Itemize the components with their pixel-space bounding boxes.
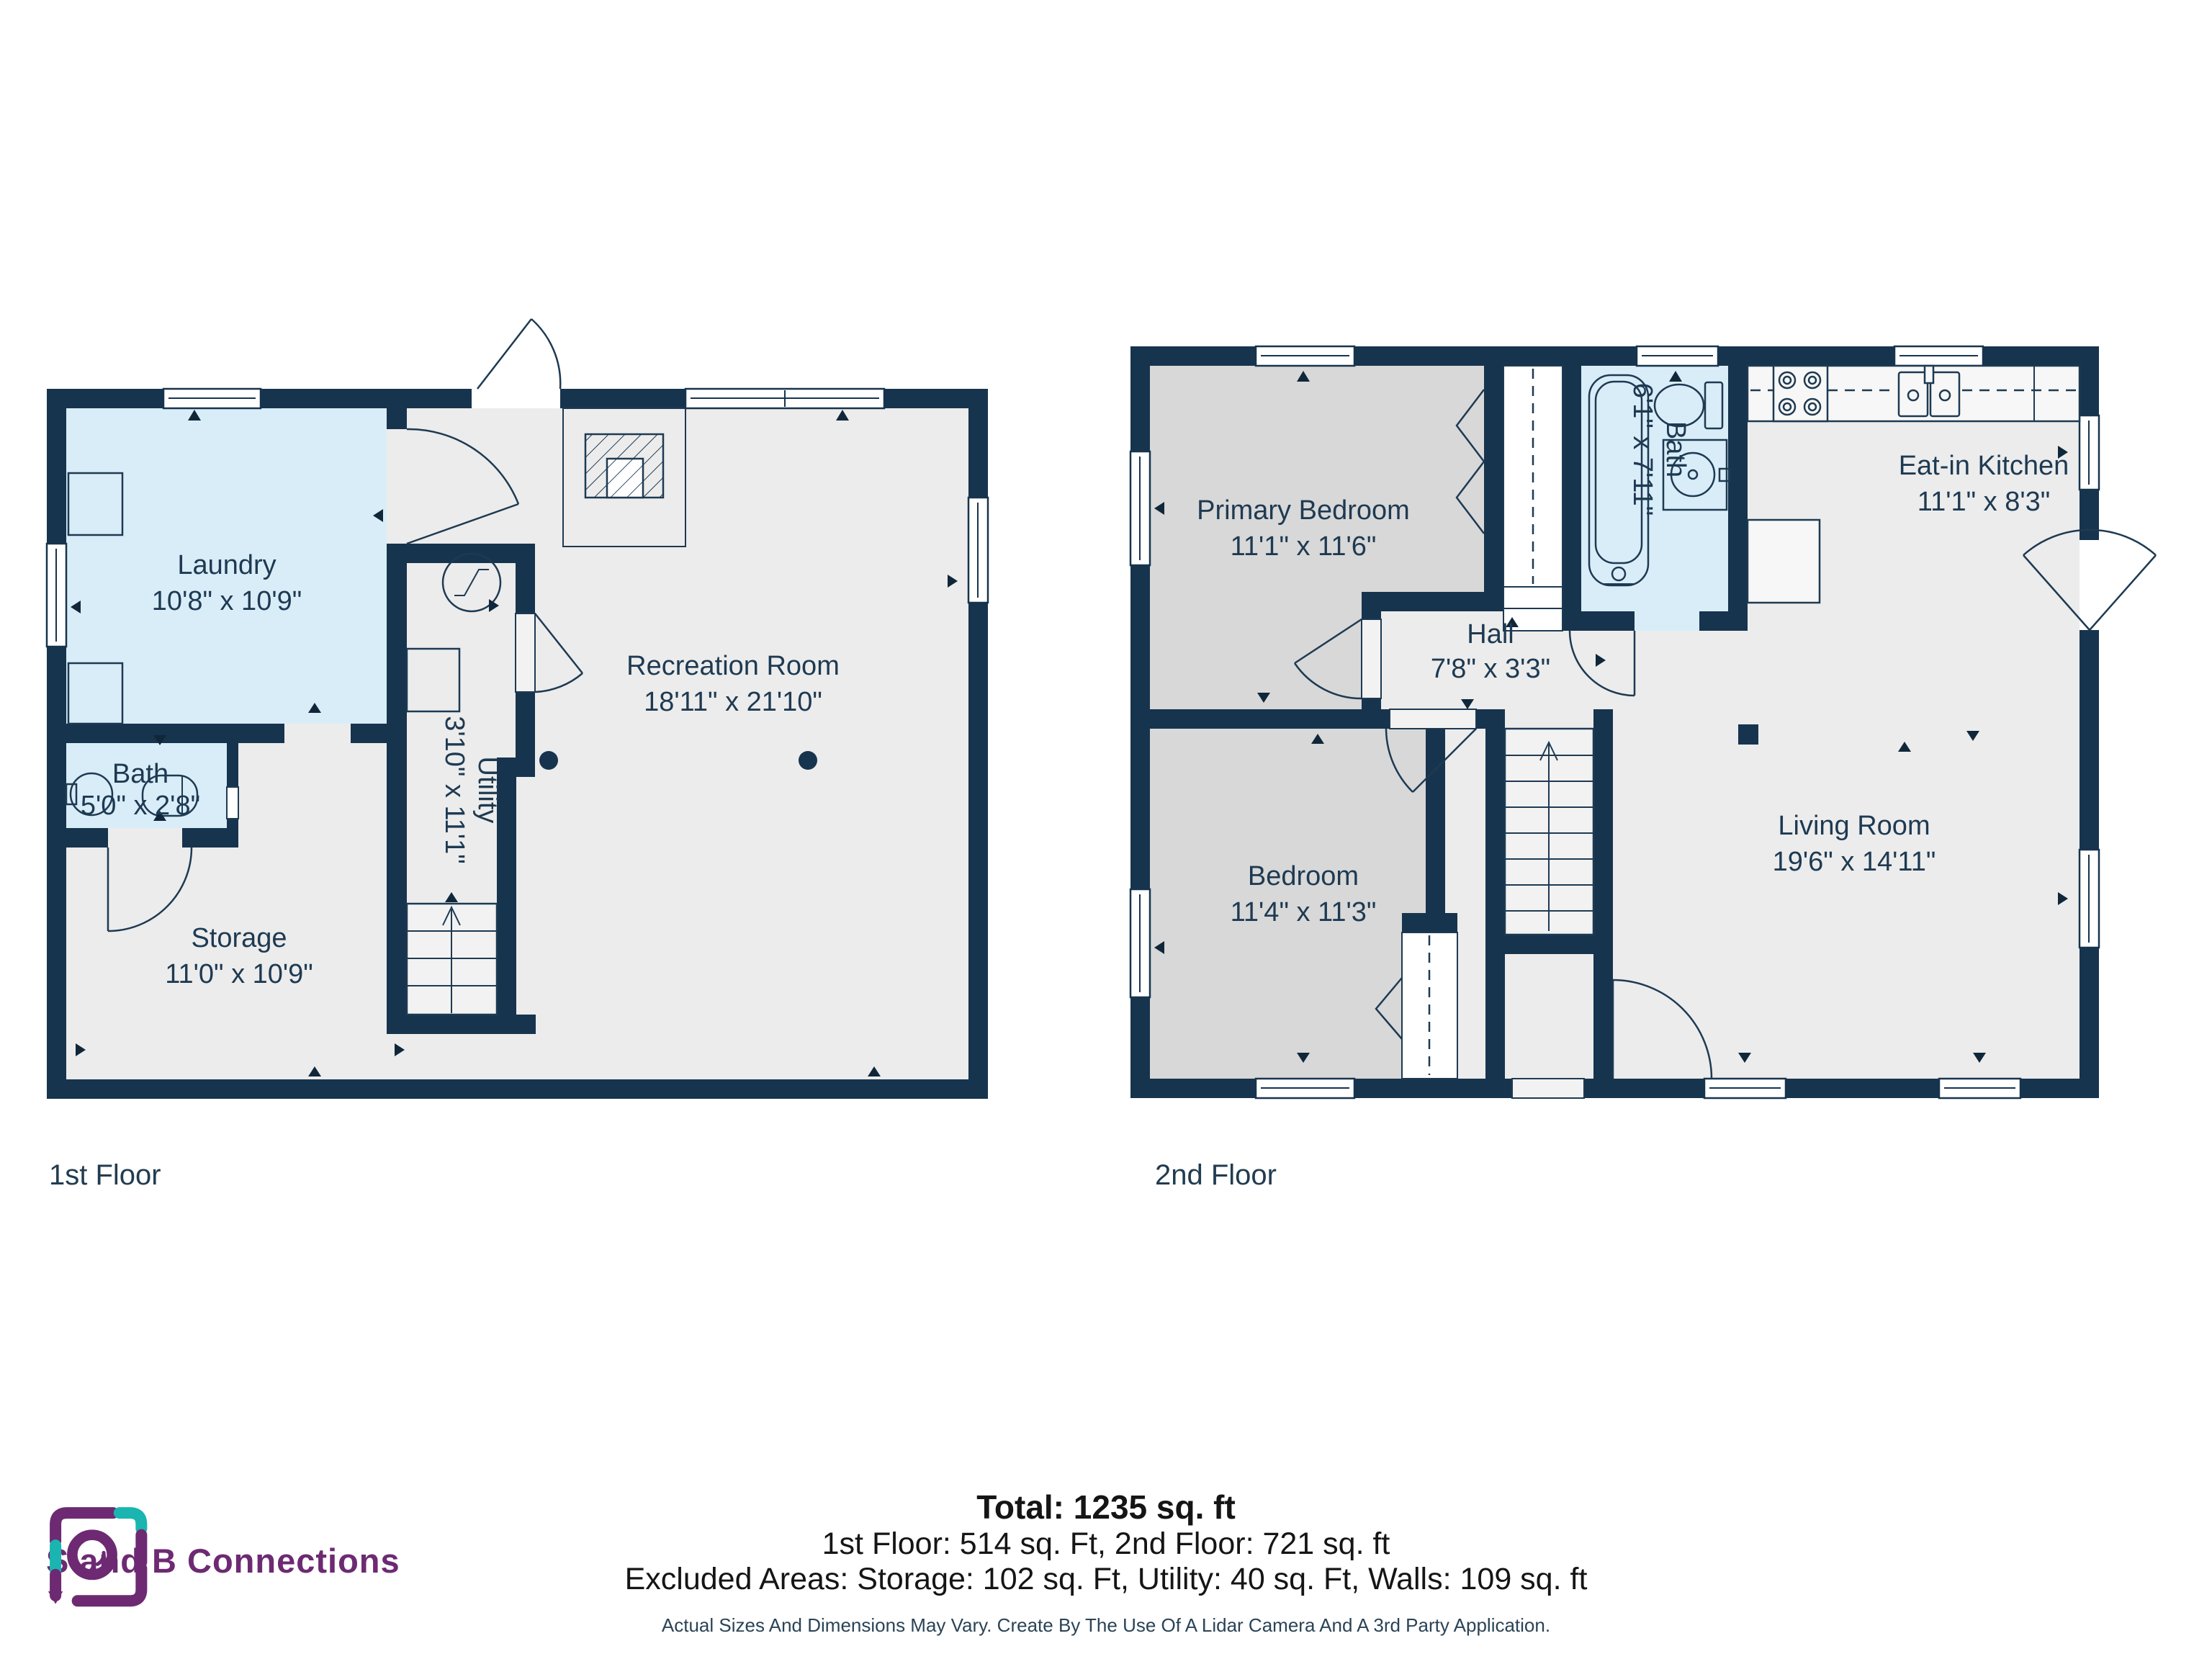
second-floor-caption: 2nd Floor	[1155, 1159, 1277, 1192]
fridge-icon	[1748, 520, 1820, 603]
laundry-dims: 10'8" x 10'9"	[152, 586, 302, 616]
bath2-dims: 6'1" x 7'11"	[1627, 383, 1658, 516]
staircase-down	[407, 892, 497, 1015]
second-floor-plan: Primary Bedroom 11'1" x 11'6" Bath 6'1" …	[1130, 346, 2196, 1098]
recreation-dims: 18'11" x 21'10"	[644, 687, 822, 717]
utility-dims: 3'10" x 11'1"	[439, 716, 469, 864]
first-floor-caption: 1st Floor	[49, 1159, 161, 1192]
living-room-label: Living Room	[1778, 811, 1930, 841]
floorplan-page: Laundry 10'8" x 10'9" Bath 5'0" x 2'8" S…	[0, 0, 2212, 1659]
living-room-dims: 19'6" x 14'11"	[1773, 847, 1936, 877]
bedroom-dims: 11'4" x 11'3"	[1231, 897, 1377, 927]
storage-dims: 11'0" x 10'9"	[165, 959, 313, 989]
disclaimer-text: Actual Sizes And Dimensions May Vary. Cr…	[0, 1614, 2212, 1637]
company-logo: S and B Connections	[46, 1541, 400, 1581]
recreation-label: Recreation Room	[626, 651, 840, 681]
column	[1738, 724, 1758, 745]
hall-dims: 7'8" x 3'3"	[1431, 654, 1550, 684]
first-floor-plan: Laundry 10'8" x 10'9" Bath 5'0" x 2'8" S…	[47, 263, 988, 1099]
camera-logo-icon	[46, 1503, 161, 1619]
column	[539, 751, 558, 770]
kitchen-label: Eat-in Kitchen	[1899, 451, 2069, 481]
bedroom-label: Bedroom	[1248, 861, 1359, 891]
primary-bedroom-label: Primary Bedroom	[1197, 495, 1410, 526]
staircase-up	[1505, 729, 1593, 935]
bath1-dims: 5'0" x 2'8"	[81, 791, 200, 821]
hall-label: Hall	[1467, 619, 1514, 649]
total-area: Total: 1235 sq. ft	[0, 1489, 2212, 1525]
bath2-label: Bath	[1660, 421, 1691, 477]
utility-label: Utility	[472, 757, 503, 824]
stove-icon	[1773, 366, 1827, 421]
storage-label: Storage	[191, 923, 287, 953]
column	[799, 751, 817, 770]
bath1-label: Bath	[112, 759, 168, 789]
kitchen-dims: 11'1" x 8'3"	[1917, 487, 2050, 517]
primary-bedroom-dims: 11'1" x 11'6"	[1231, 531, 1377, 562]
laundry-label: Laundry	[177, 550, 276, 580]
